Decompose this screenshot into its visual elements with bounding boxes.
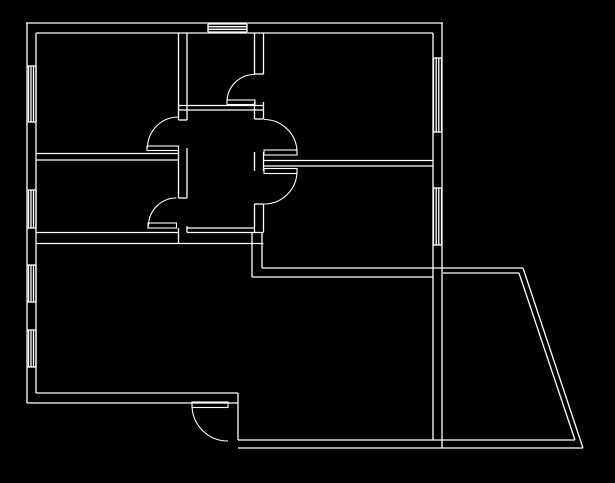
door-top-right-room-swing-arc	[264, 120, 297, 153]
wall-line	[519, 273, 575, 440]
door-top-right-room-leaf	[264, 150, 297, 155]
door-top-left-room-leaf	[147, 146, 179, 151]
floorplan-drawing[interactable]	[0, 0, 615, 483]
door-mid-left-room-leaf	[148, 223, 177, 228]
cad-model-space[interactable]	[0, 0, 615, 483]
door-entrance-swing-arc	[192, 405, 228, 441]
door-mid-left-room-swing-arc	[149, 198, 177, 226]
wall-line	[523, 268, 583, 448]
door-mid-right-room-swing-arc	[264, 171, 297, 204]
door-top-left-room-swing-arc	[148, 117, 179, 148]
door-center-room-swing-arc	[227, 75, 255, 103]
door-mid-right-room-leaf	[264, 169, 297, 174]
door-center-room-leaf	[227, 100, 255, 105]
